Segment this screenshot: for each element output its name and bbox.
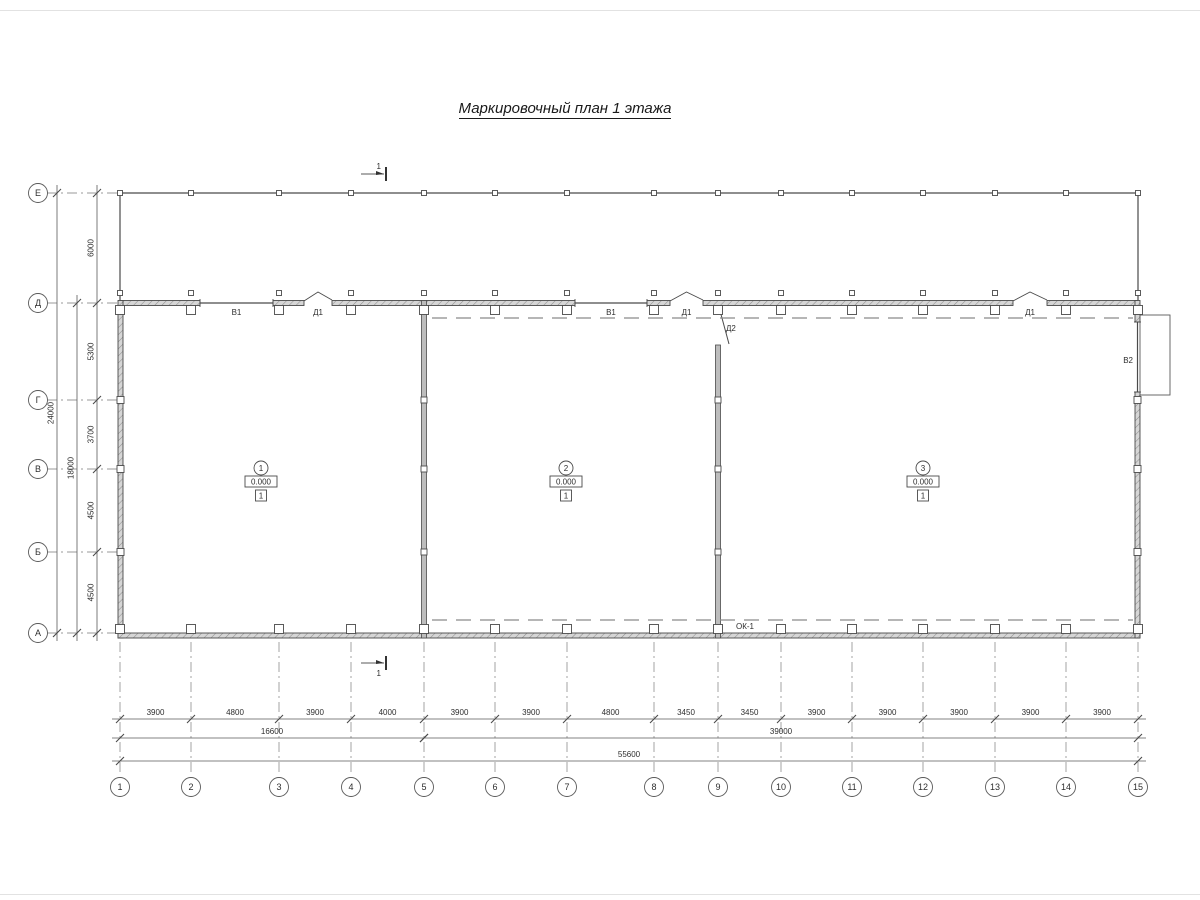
axis-bubble-label: Б <box>35 547 41 557</box>
column-square <box>1064 291 1069 296</box>
column-square <box>563 625 572 634</box>
column-square <box>993 191 998 196</box>
dim-value: 3900 <box>522 708 540 717</box>
drawing-sheet: Маркировочный план 1 этажа 3900480039004… <box>0 0 1200 900</box>
dim-value: 3450 <box>741 708 759 717</box>
dim-value: 3900 <box>808 708 826 717</box>
dim-value: 3900 <box>306 708 324 717</box>
column-square <box>117 466 124 473</box>
wall-axis-d-segment <box>273 301 304 306</box>
exterior-annex-rect <box>1140 315 1170 395</box>
dim-value: 3900 <box>1093 708 1111 717</box>
column-square <box>117 549 124 556</box>
dim-value: 3900 <box>950 708 968 717</box>
dim-value: 3900 <box>451 708 469 717</box>
column-square <box>347 625 356 634</box>
room-floor-type: 1 <box>259 492 264 501</box>
drawing-title: Маркировочный план 1 этажа <box>0 100 1130 117</box>
column-square <box>716 291 721 296</box>
column-square <box>714 625 723 634</box>
column-square <box>187 306 196 315</box>
column-square <box>275 625 284 634</box>
column-square <box>1064 191 1069 196</box>
room-number: 1 <box>259 464 264 473</box>
dim-value: 4000 <box>379 708 397 717</box>
drawing-title-text: Маркировочный план 1 этажа <box>459 100 672 119</box>
column-square <box>921 191 926 196</box>
column-square <box>991 306 1000 315</box>
axis-bubble-label: 10 <box>776 782 786 792</box>
column-square <box>420 625 429 634</box>
axis-bubble-label: 2 <box>188 782 193 792</box>
wall-axis-d-segment <box>120 301 200 306</box>
column-square <box>1062 306 1071 315</box>
axis-bubble-label: 3 <box>276 782 281 792</box>
column-square <box>850 291 855 296</box>
column-square <box>650 306 659 315</box>
column-square <box>993 291 998 296</box>
axis-bubble-label: 8 <box>651 782 656 792</box>
axis-bubble-label: А <box>35 628 41 638</box>
dim-value: 4500 <box>87 501 96 519</box>
dim-value: 55600 <box>618 750 641 759</box>
dim-value: 5300 <box>87 342 96 360</box>
column-square <box>1134 397 1141 404</box>
column-square <box>921 291 926 296</box>
door-swing <box>670 292 703 301</box>
dim-value: 4800 <box>602 708 620 717</box>
axis-bubble-label: 7 <box>564 782 569 792</box>
door-swing <box>1013 292 1047 301</box>
column-square <box>563 306 572 315</box>
wall-axis-d-segment <box>647 301 670 306</box>
dim-value: 4500 <box>87 583 96 601</box>
dim-value: 39000 <box>770 727 793 736</box>
column-square <box>919 625 928 634</box>
column-square <box>422 291 427 296</box>
column-square <box>715 549 721 555</box>
window-label: В1 <box>606 308 616 317</box>
column-square <box>715 466 721 472</box>
dim-value: 6000 <box>87 239 96 257</box>
dim-value: 24000 <box>47 401 56 424</box>
column-square <box>1134 466 1141 473</box>
column-square <box>116 625 125 634</box>
room-elevation: 0.000 <box>556 478 577 487</box>
window-label: ОК-1 <box>736 622 755 631</box>
column-square <box>349 291 354 296</box>
floor-plan-canvas: 3900480039004000390039004800345034503900… <box>0 0 1200 900</box>
column-square <box>1136 291 1141 296</box>
door-label: Д1 <box>682 308 692 317</box>
dim-value: 18000 <box>67 456 76 479</box>
column-square <box>652 191 657 196</box>
column-square <box>1134 625 1143 634</box>
wall-axis-d-segment <box>332 301 575 306</box>
column-square <box>421 397 427 403</box>
wall-axis-d-segment <box>703 301 1013 306</box>
axis-bubble-label: 11 <box>847 782 856 792</box>
axis-bubble-label: Г <box>36 395 41 405</box>
door-label: Д1 <box>1025 308 1035 317</box>
dim-value: 3900 <box>879 708 897 717</box>
column-square <box>1134 549 1141 556</box>
room-elevation: 0.000 <box>913 478 934 487</box>
axis-bubble-label: Д <box>35 298 41 308</box>
column-square <box>117 397 124 404</box>
column-square <box>277 291 282 296</box>
window-label: В2 <box>1123 356 1133 365</box>
column-square <box>493 291 498 296</box>
sheet-bottom-edge <box>0 894 1200 895</box>
column-square <box>652 291 657 296</box>
room-floor-type: 1 <box>921 492 926 501</box>
door-swing <box>304 292 332 301</box>
axis-bubble-label: Е <box>35 188 41 198</box>
door-label: Д1 <box>313 308 323 317</box>
column-square <box>716 191 721 196</box>
sheet-top-edge <box>0 10 1200 11</box>
column-square <box>491 625 500 634</box>
dim-value: 3450 <box>677 708 695 717</box>
column-square <box>565 291 570 296</box>
column-square <box>1136 191 1141 196</box>
axis-bubble-label: 6 <box>492 782 497 792</box>
dim-value: 4800 <box>226 708 244 717</box>
column-square <box>118 291 123 296</box>
axis-bubble-label: 9 <box>715 782 720 792</box>
column-square <box>991 625 1000 634</box>
column-square <box>187 625 196 634</box>
axis-bubble-label: 5 <box>421 782 426 792</box>
axis-bubble-label: 15 <box>1133 782 1143 792</box>
column-square <box>420 306 429 315</box>
column-square <box>565 191 570 196</box>
section-label: 1 <box>377 162 382 171</box>
column-square <box>848 306 857 315</box>
column-square <box>779 291 784 296</box>
column-square <box>493 191 498 196</box>
dim-value: 3700 <box>87 425 96 443</box>
room-number: 3 <box>921 464 926 473</box>
column-square <box>277 191 282 196</box>
column-square <box>118 191 123 196</box>
window-label: В1 <box>232 308 242 317</box>
door-label: Д2 <box>726 324 736 333</box>
wall-right-lower <box>1135 392 1140 638</box>
room-number: 2 <box>564 464 569 473</box>
column-square <box>715 397 721 403</box>
axis-bubble-label: 4 <box>348 782 353 792</box>
column-square <box>650 625 659 634</box>
column-square <box>1062 625 1071 634</box>
column-square <box>189 191 194 196</box>
column-square <box>848 625 857 634</box>
room-floor-type: 1 <box>564 492 569 501</box>
column-square <box>349 191 354 196</box>
dim-value: 16600 <box>261 727 284 736</box>
column-square <box>1134 306 1143 315</box>
wall-axis-9 <box>716 345 721 638</box>
wall-bottom <box>118 633 1140 638</box>
axis-bubble-label: 12 <box>918 782 928 792</box>
wall-axis-d-segment <box>1047 301 1138 306</box>
axis-bubble-label: В <box>35 464 41 474</box>
column-square <box>275 306 284 315</box>
dim-value: 3900 <box>1022 708 1040 717</box>
column-square <box>777 625 786 634</box>
column-square <box>714 306 723 315</box>
column-square <box>850 191 855 196</box>
column-square <box>116 306 125 315</box>
axis-bubble-label: 13 <box>990 782 1000 792</box>
column-square <box>777 306 786 315</box>
axis-bubble-label: 14 <box>1061 782 1071 792</box>
column-square <box>422 191 427 196</box>
column-square <box>491 306 500 315</box>
column-square <box>347 306 356 315</box>
column-square <box>421 549 427 555</box>
column-square <box>421 466 427 472</box>
room-elevation: 0.000 <box>251 478 272 487</box>
axis-bubble-label: 1 <box>117 782 122 792</box>
column-square <box>779 191 784 196</box>
dim-value: 3900 <box>147 708 165 717</box>
column-square <box>919 306 928 315</box>
column-square <box>189 291 194 296</box>
section-label: 1 <box>377 669 382 678</box>
